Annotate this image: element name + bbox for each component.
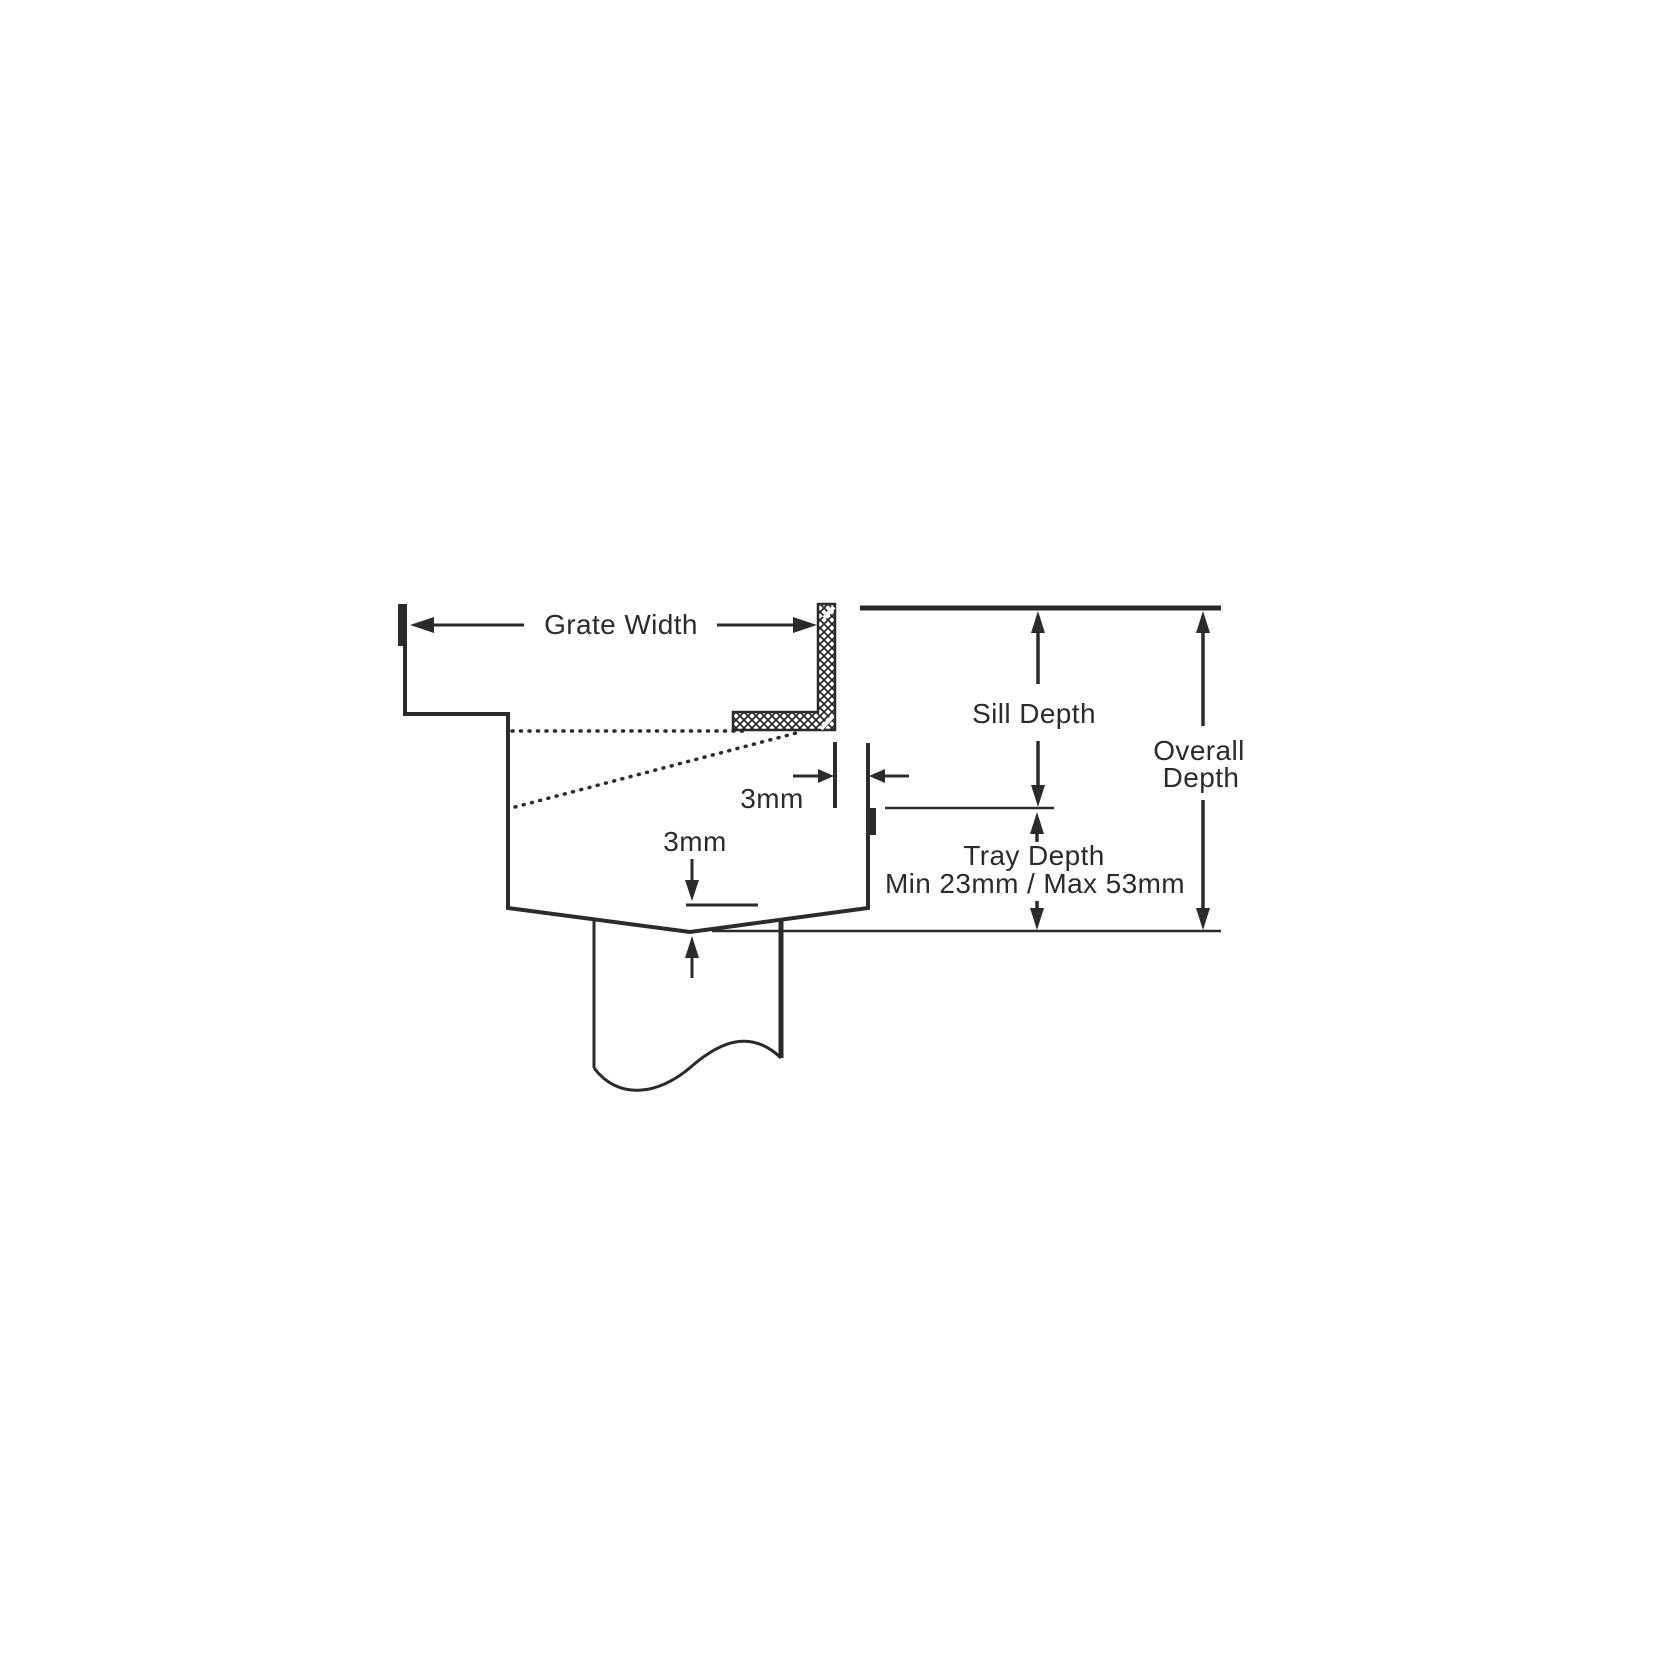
arrowhead-up-icon bbox=[1196, 611, 1210, 633]
tray-depth-label-line2: Min 23mm / Max 53mm bbox=[885, 868, 1185, 899]
arrowhead-left-icon bbox=[869, 769, 885, 783]
grate-frame-hatched-angle bbox=[733, 604, 835, 730]
grate-width-dimension: Grate Width bbox=[410, 609, 817, 640]
arrowhead-down-icon bbox=[1196, 908, 1210, 930]
tray-depth-label-line1: Tray Depth bbox=[963, 840, 1104, 871]
tray-thickness-dimension: 3mm bbox=[663, 826, 758, 978]
tray-wall-outer-tick bbox=[867, 808, 876, 835]
grate-gap-label: 3mm bbox=[740, 783, 803, 814]
sill-depth-dimension: Sill Depth bbox=[885, 611, 1096, 808]
overall-depth-label-line2: Depth bbox=[1163, 762, 1240, 793]
drain-diagram-svg: Grate Width 3mm Sill Depth Tray Dept bbox=[0, 0, 1676, 1676]
arrowhead-down-icon bbox=[1030, 908, 1044, 930]
arrowhead-up-icon bbox=[1030, 812, 1044, 834]
pipe-break-line bbox=[594, 1041, 781, 1090]
tray-thickness-label: 3mm bbox=[663, 826, 726, 857]
sill-depth-label: Sill Depth bbox=[972, 698, 1096, 729]
arrowhead-up-icon bbox=[685, 936, 699, 958]
grate-width-label: Grate Width bbox=[544, 609, 698, 640]
arrowhead-down-icon bbox=[1031, 785, 1045, 807]
arrowhead-up-icon bbox=[1031, 611, 1045, 633]
drain-cross-section-diagram: Grate Width 3mm Sill Depth Tray Dept bbox=[0, 0, 1676, 1676]
arrowhead-down-icon bbox=[685, 880, 699, 901]
tray-profile-outline bbox=[405, 606, 868, 932]
arrowhead-right-icon bbox=[818, 769, 834, 783]
arrowhead-right-icon bbox=[793, 617, 817, 633]
tray-depth-dimension: Tray Depth Min 23mm / Max 53mm bbox=[885, 812, 1185, 930]
grate-gap-dimension: 3mm bbox=[740, 742, 909, 814]
